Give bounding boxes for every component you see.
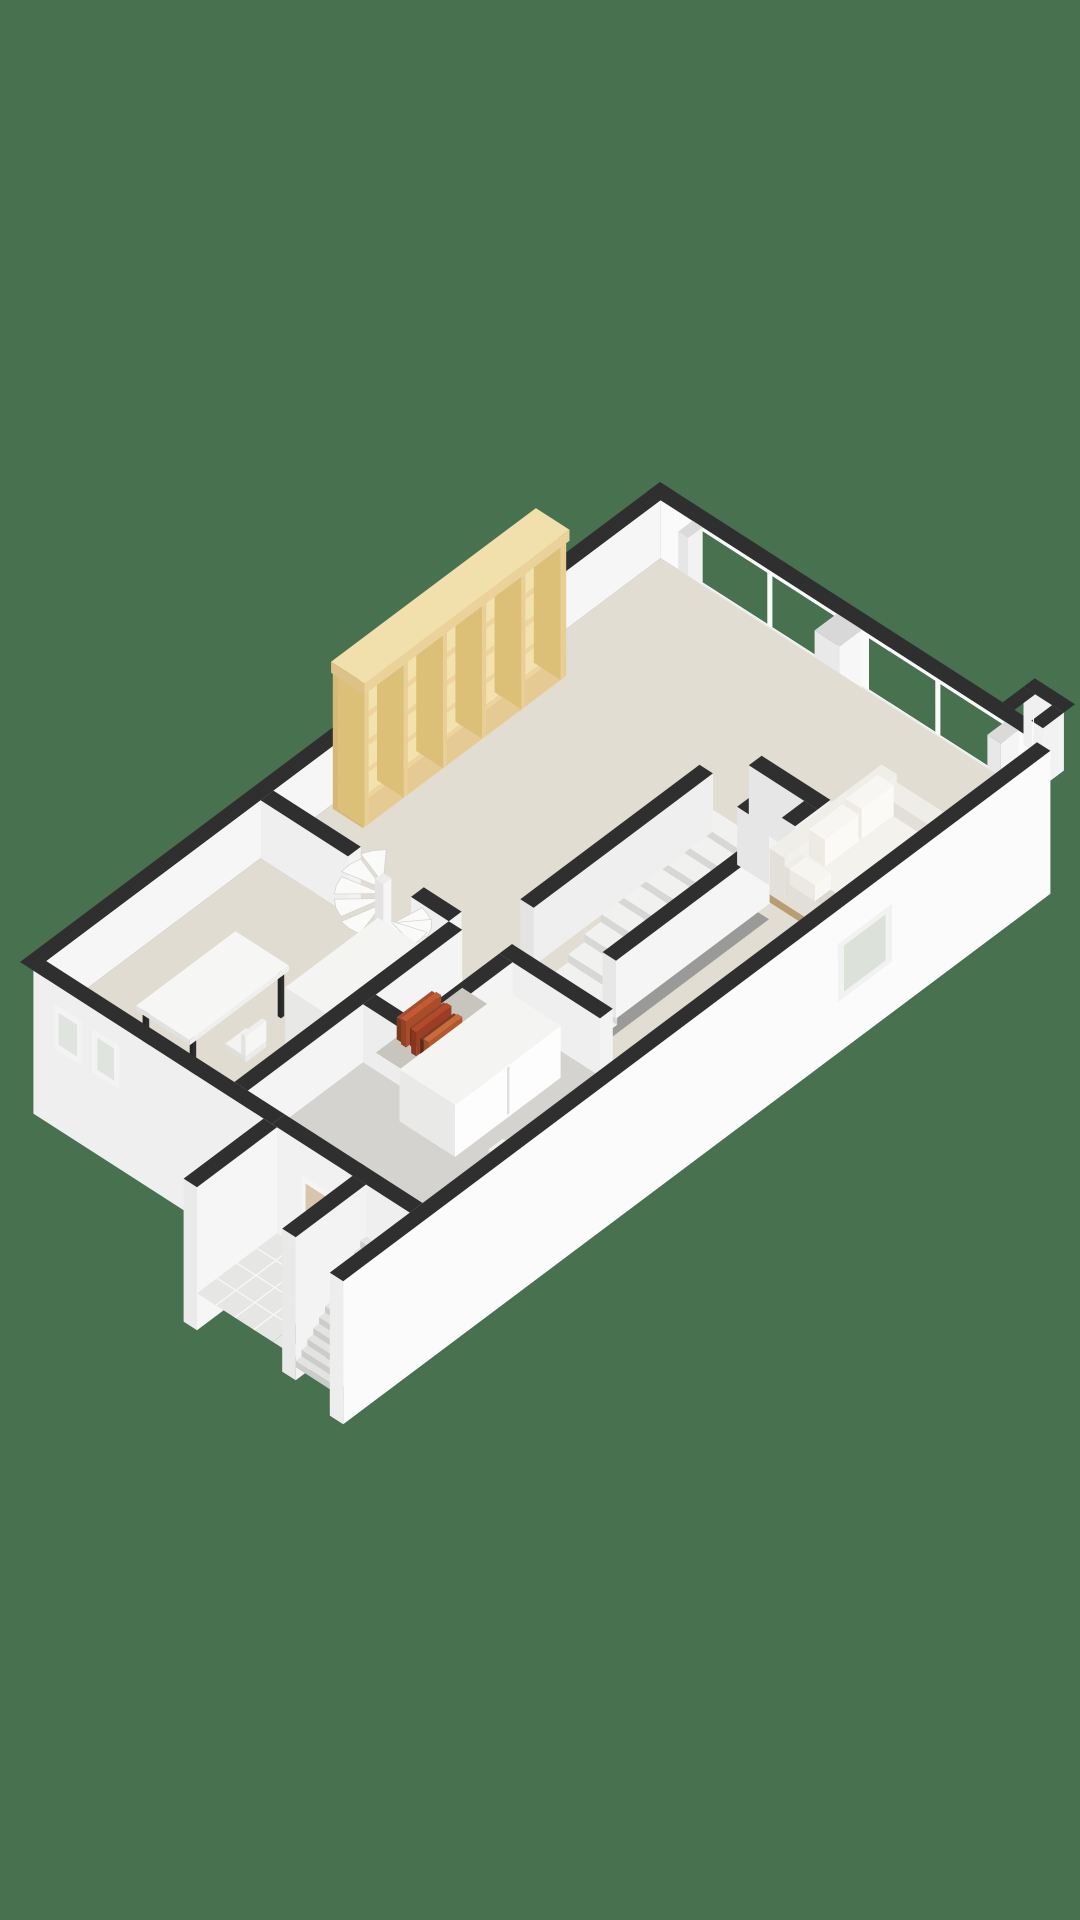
se-wall (330, 1273, 343, 1425)
sofa-back (770, 848, 785, 904)
floorplan-viewport (0, 0, 1080, 1920)
bookshelf-divider (365, 689, 369, 827)
table-leg (281, 972, 284, 1018)
porch-stub-wall (282, 1229, 296, 1381)
island-seam (507, 1066, 509, 1115)
stored-items (401, 1018, 406, 1047)
bookshelf-divider (561, 542, 565, 680)
bookshelf-divider (338, 675, 365, 827)
bookshelf-divider (521, 571, 525, 709)
porch-wall (184, 1179, 197, 1331)
bookshelf-divider (443, 630, 447, 768)
chair-back (241, 1034, 245, 1057)
stored-items (411, 1029, 416, 1056)
floorplan-3d-render (0, 0, 1080, 1920)
bookshelf-divider (404, 660, 408, 798)
bookshelf-divider (482, 601, 486, 739)
table-leg (278, 972, 281, 1018)
